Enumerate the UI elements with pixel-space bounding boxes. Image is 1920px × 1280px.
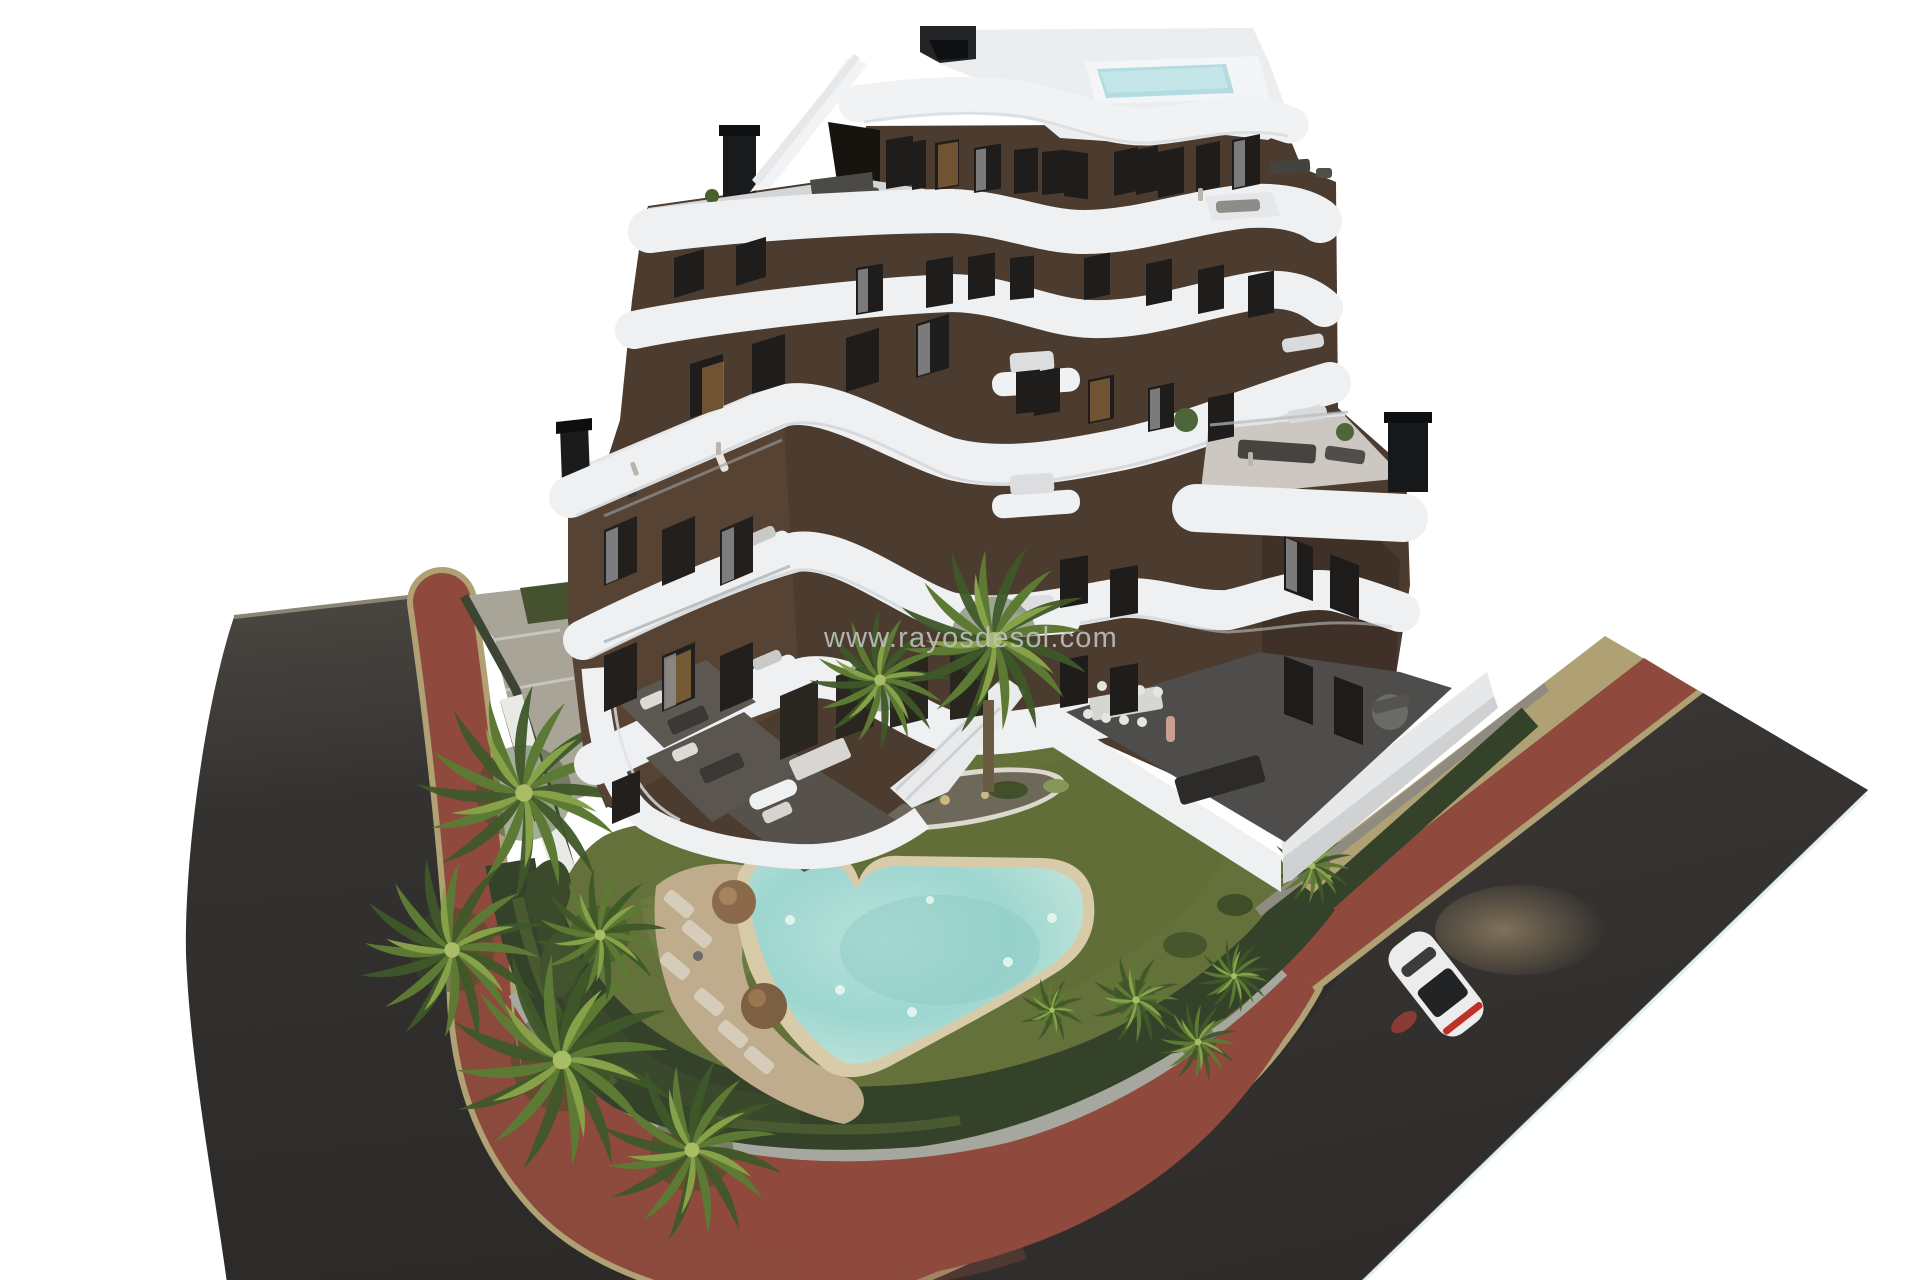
svg-text:www.rayosdesol.com: www.rayosdesol.com bbox=[823, 622, 1118, 654]
